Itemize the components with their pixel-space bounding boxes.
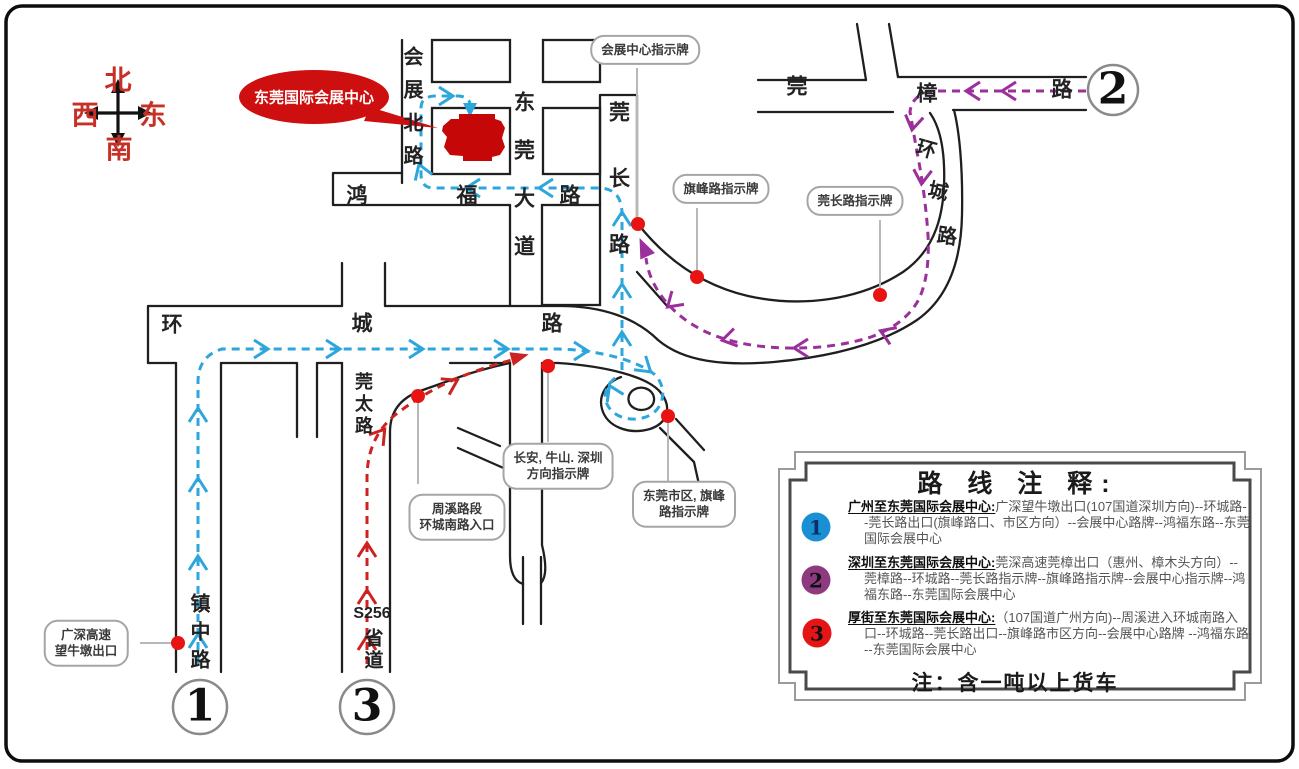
road-label-huancheng-ne-2: 城 bbox=[926, 180, 950, 204]
road-label-guanzhang-3: 路 bbox=[1052, 80, 1073, 101]
legend-circle-2: 2 bbox=[802, 566, 831, 595]
road-label-huancheng-w-3: 路 bbox=[542, 314, 563, 335]
legend-entry-1-heading: 广州至东莞国际会展中心: bbox=[848, 499, 995, 514]
legend-circle-3: 3 bbox=[803, 619, 832, 648]
road-label-zhenzhong: 镇中路 bbox=[188, 593, 208, 677]
sign-zhouxi-line2: 环城南路入口 bbox=[419, 517, 494, 533]
sign-changan-line1: 长安, 牛山. 深圳 bbox=[514, 450, 603, 466]
exhibition-center-building bbox=[442, 114, 505, 161]
road-label-s256: S256 bbox=[353, 606, 390, 622]
map-marker-2: 2 bbox=[1098, 64, 1129, 115]
sign-gaosu: 广深高速 望牛墩出口 bbox=[44, 620, 129, 667]
sign-shiqu: 东莞市区, 旗峰 路指示牌 bbox=[632, 481, 736, 528]
sign-gaosu-line1: 广深高速 bbox=[55, 627, 118, 643]
road-label-hongfu-2: 福 bbox=[457, 186, 478, 207]
sign-zhouxi: 周溪路段 环城南路入口 bbox=[408, 494, 505, 541]
route1-blue-path bbox=[198, 96, 663, 664]
sign-changan-line2: 方向指示牌 bbox=[514, 466, 603, 482]
sign-qifeng-text: 旗峰路指示牌 bbox=[683, 182, 758, 196]
legend-entry-3: 厚街至东莞国际会展中心:（107国道广州方向)--周溪进入环城南路入口--环城路… bbox=[848, 610, 1250, 658]
road-label-huancheng-w-2: 城 bbox=[352, 314, 373, 335]
compass-north-label: 北 bbox=[105, 59, 132, 98]
map-marker-3: 3 bbox=[352, 681, 383, 732]
sign-guanchang-text: 莞长路指示牌 bbox=[817, 194, 892, 208]
sign-huizhan-center-text: 会展中心指示牌 bbox=[601, 43, 689, 57]
sign-huizhan-center: 会展中心指示牌 bbox=[590, 35, 700, 65]
road-label-huancheng-ne-3: 路 bbox=[936, 226, 959, 249]
road-label-huancheng-w-1: 环 bbox=[162, 315, 183, 336]
compass-south-label: 南 bbox=[106, 128, 133, 167]
sign-qifeng: 旗峰路指示牌 bbox=[672, 174, 769, 204]
sign-changan: 长安, 牛山. 深圳 方向指示牌 bbox=[503, 443, 614, 490]
road-label-guanchang: 莞长路 bbox=[608, 101, 629, 299]
road-label-hongfu-3: 路 bbox=[560, 186, 581, 207]
route2-purple-path bbox=[646, 91, 1086, 348]
sign-zhouxi-line1: 周溪路段 bbox=[419, 501, 494, 517]
destination-label: 东莞国际会展中心 bbox=[254, 87, 374, 108]
road-label-guanzhang-2: 樟 bbox=[917, 84, 938, 105]
legend-entry-1: 广州至东莞国际会展中心:广深望牛墩出口(107国道深圳方向)--环城路--莞长路… bbox=[848, 499, 1250, 547]
sign-gaosu-line2: 望牛墩出口 bbox=[55, 643, 118, 659]
map-marker-1: 1 bbox=[185, 681, 216, 732]
road-label-guanzhang-1: 莞 bbox=[787, 77, 808, 98]
legend-entry-3-heading: 厚街至东莞国际会展中心: bbox=[848, 610, 995, 625]
sign-guanchang: 莞长路指示牌 bbox=[806, 186, 903, 216]
sign-shiqu-line2: 路指示牌 bbox=[643, 504, 725, 520]
compass-east-label: 东 bbox=[140, 94, 167, 133]
road-label-guantai: 莞太路 bbox=[354, 372, 372, 438]
route-map-canvas: 北 南 西 东 东莞国际会展中心 会展北路 东莞大道 莞长路 莞太路 镇中路 S… bbox=[0, 0, 1299, 769]
compass-west-label: 西 bbox=[72, 94, 99, 133]
road-label-shengdao: 省道 bbox=[363, 628, 382, 672]
legend-note: 注：含一吨以上货车 bbox=[912, 667, 1119, 697]
road-label-hongfu-1: 鸿 bbox=[347, 186, 368, 207]
legend-entry-2: 深圳至东莞国际会展中心:莞深高速莞樟出口（惠州、樟木头方向）--莞樟路--环城路… bbox=[848, 555, 1250, 603]
route2-purple-arrows bbox=[632, 82, 1016, 357]
legend-circle-1: 1 bbox=[802, 513, 831, 542]
legend-title: 路 线 注 释: bbox=[917, 464, 1118, 500]
legend-entry-2-heading: 深圳至东莞国际会展中心: bbox=[848, 555, 995, 570]
road-label-huizhan-north: 会展北路 bbox=[401, 46, 421, 178]
road-label-dongguan-avenue: 东莞大道 bbox=[513, 91, 534, 283]
sign-shiqu-line1: 东莞市区, 旗峰 bbox=[643, 488, 725, 504]
